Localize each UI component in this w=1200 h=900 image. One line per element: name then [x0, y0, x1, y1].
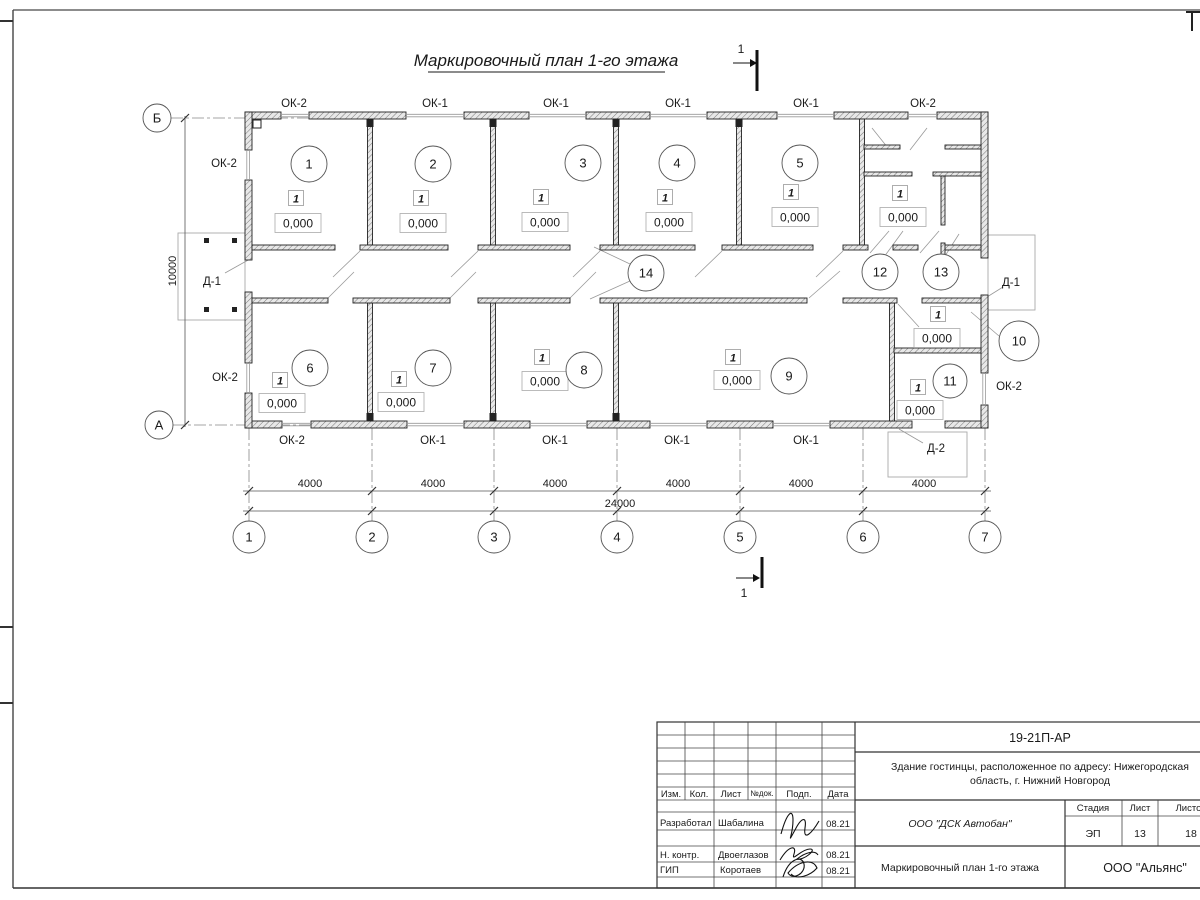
- role-developed: Разработал: [660, 818, 712, 829]
- room-label: 5: [782, 145, 818, 181]
- section-number: 1: [738, 42, 745, 56]
- name-gip: Коротаев: [720, 865, 761, 876]
- svg-text:6: 6: [306, 361, 313, 376]
- porch-right: [988, 235, 1035, 310]
- window-label: ОК-2: [211, 158, 237, 170]
- svg-text:А: А: [155, 418, 164, 433]
- room-label: 13: [923, 254, 959, 290]
- room-label: 14: [628, 255, 664, 291]
- role-norm: Н. контр.: [660, 850, 699, 861]
- sheet-frame: [0, 10, 1200, 888]
- axis-bubble: 7: [969, 521, 1001, 553]
- dim-bay: 4000: [298, 478, 322, 490]
- room-label: 9: [771, 358, 807, 394]
- date-value: 08.21: [826, 819, 850, 830]
- svg-text:7: 7: [981, 530, 988, 545]
- section-number: 1: [741, 586, 748, 600]
- svg-text:10: 10: [1012, 334, 1026, 349]
- drawing-name: Маркировочный план 1-го этажа: [881, 862, 1039, 874]
- svg-text:4: 4: [613, 530, 620, 545]
- room-label: 8: [566, 352, 602, 388]
- signature-developed: [781, 813, 819, 838]
- level-value: 0,000: [722, 374, 752, 388]
- svg-text:2: 2: [368, 530, 375, 545]
- sheet-no: 13: [1134, 828, 1146, 840]
- floor-mark: 1: [897, 189, 903, 201]
- window-label: ОК-1: [543, 98, 569, 110]
- room-label: 10: [999, 321, 1039, 361]
- axis-bubble: 3: [478, 521, 510, 553]
- window-label: ОК-1: [665, 98, 691, 110]
- svg-text:7: 7: [429, 361, 436, 376]
- svg-text:5: 5: [736, 530, 743, 545]
- dim-bay: 4000: [421, 478, 445, 490]
- window-label: ОК-1: [664, 435, 690, 447]
- window-label: ОК-1: [793, 435, 819, 447]
- svg-text:1: 1: [305, 157, 312, 172]
- date-value: 08.21: [826, 850, 850, 861]
- page-title: Маркировочный план 1-го этажа: [414, 51, 679, 70]
- drawing-sheet: Маркировочный план 1-го этажа 1 1: [0, 0, 1200, 900]
- axis-bubble: 1: [233, 521, 265, 553]
- floor-mark: 1: [538, 193, 544, 205]
- room-label: 7: [415, 350, 451, 386]
- window-label: ОК-1: [422, 98, 448, 110]
- svg-text:5: 5: [796, 156, 803, 171]
- drawing-title: Маркировочный план 1-го этажа: [414, 51, 679, 72]
- col-podp: Подп.: [786, 789, 811, 800]
- floor-mark: 1: [293, 194, 299, 206]
- sheet-label: Лист: [1130, 803, 1151, 814]
- axis-bubble: 2: [356, 521, 388, 553]
- svg-text:4: 4: [673, 156, 680, 171]
- window-label: ОК-2: [910, 98, 936, 110]
- svg-text:8: 8: [580, 363, 587, 378]
- floor-mark: 1: [788, 188, 794, 200]
- dim-depth: 10000: [167, 256, 179, 287]
- section-mark-top: 1: [733, 42, 757, 91]
- svg-text:6: 6: [859, 530, 866, 545]
- room-label: 12: [862, 254, 898, 290]
- axis-bubble: 5: [724, 521, 756, 553]
- window-label: ОК-2: [996, 381, 1022, 393]
- level-value: 0,000: [654, 216, 684, 230]
- level-value: 0,000: [888, 211, 918, 225]
- signature-norm: [780, 848, 818, 860]
- floor-mark: 1: [277, 376, 283, 388]
- svg-text:3: 3: [579, 156, 586, 171]
- stage-value: ЭП: [1085, 828, 1100, 840]
- title-block: Изм. Кол. Лист №док. Подп. Дата 19-21П-А…: [657, 722, 1200, 888]
- axis-bubble: 6: [847, 521, 879, 553]
- col-ndok: №док.: [750, 789, 773, 798]
- sheets-total: 18: [1185, 828, 1197, 840]
- room-label: 4: [659, 145, 695, 181]
- customer-org: ООО "Альянс": [1103, 861, 1187, 875]
- dim-bay: 4000: [666, 478, 690, 490]
- level-value: 0,000: [530, 216, 560, 230]
- dim-total: 24000: [605, 498, 636, 510]
- floor-mark: 1: [418, 194, 424, 206]
- svg-text:13: 13: [934, 265, 948, 280]
- floor-mark: 1: [935, 310, 941, 322]
- section-mark-bottom: 1: [736, 557, 762, 600]
- axis-bubble: Б: [143, 104, 171, 132]
- object-name-line1: Здание гостинцы, расположенное по адресу…: [891, 761, 1189, 773]
- room-numbers: 1 2 3 4 5 6 7 8 9 10 11 12 13 14: [291, 145, 1039, 398]
- floor-mark: 1: [396, 375, 402, 387]
- floor-mark: 1: [915, 383, 921, 395]
- door-label: Д-1: [203, 276, 221, 288]
- date-value: 08.21: [826, 866, 850, 877]
- svg-text:2: 2: [429, 157, 436, 172]
- window-label: ОК-1: [542, 435, 568, 447]
- design-org: ООО "ДСК Автобан": [908, 818, 1013, 830]
- dim-bay: 4000: [912, 478, 936, 490]
- level-value: 0,000: [530, 375, 560, 389]
- doc-code: 19-21П-АР: [1009, 731, 1071, 745]
- svg-text:1: 1: [245, 530, 252, 545]
- window-label: ОК-1: [420, 435, 446, 447]
- sheets-label: Листов: [1176, 803, 1200, 814]
- col-list: Лист: [721, 789, 742, 800]
- level-value: 0,000: [283, 217, 313, 231]
- level-value: 0,000: [922, 332, 952, 346]
- col-izm: Изм.: [661, 789, 681, 800]
- room-label: 2: [415, 146, 451, 182]
- room-label: 6: [292, 350, 328, 386]
- window-label: ОК-2: [281, 98, 307, 110]
- floor-mark: 1: [539, 353, 545, 365]
- level-value: 0,000: [780, 211, 810, 225]
- level-value: 0,000: [267, 397, 297, 411]
- signatures: [780, 813, 819, 877]
- floor-mark: 1: [662, 193, 668, 205]
- axis-bubble: А: [145, 411, 173, 439]
- room-label: 1: [291, 146, 327, 182]
- svg-text:12: 12: [873, 265, 887, 280]
- window-label: ОК-2: [212, 372, 238, 384]
- floor-mark: 1: [730, 353, 736, 365]
- name-developed: Шабалина: [718, 818, 765, 829]
- svg-text:3: 3: [490, 530, 497, 545]
- level-value: 0,000: [905, 404, 935, 418]
- level-value: 0,000: [408, 217, 438, 231]
- window-label: ОК-2: [279, 435, 305, 447]
- svg-text:Б: Б: [153, 111, 162, 126]
- dim-bay: 4000: [789, 478, 813, 490]
- porch-columns: [204, 238, 237, 312]
- level-value: 0,000: [386, 396, 416, 410]
- door-label: Д-2: [927, 443, 945, 455]
- svg-text:14: 14: [639, 266, 653, 281]
- svg-text:11: 11: [943, 374, 957, 389]
- dim-bay: 4000: [543, 478, 567, 490]
- col-data: Дата: [827, 789, 849, 800]
- room-label: 11: [933, 364, 967, 398]
- axis-bubble: 4: [601, 521, 633, 553]
- role-gip: ГИП: [660, 865, 679, 876]
- object-name-line2: область, г. Нижний Новгород: [970, 775, 1110, 787]
- svg-text:9: 9: [785, 369, 792, 384]
- window-label: ОК-1: [793, 98, 819, 110]
- door-label: Д-1: [1002, 277, 1020, 289]
- room-label: 3: [565, 145, 601, 181]
- col-kol: Кол.: [690, 789, 709, 800]
- name-norm: Двоеглазов: [718, 850, 769, 861]
- stage-label: Стадия: [1077, 803, 1109, 814]
